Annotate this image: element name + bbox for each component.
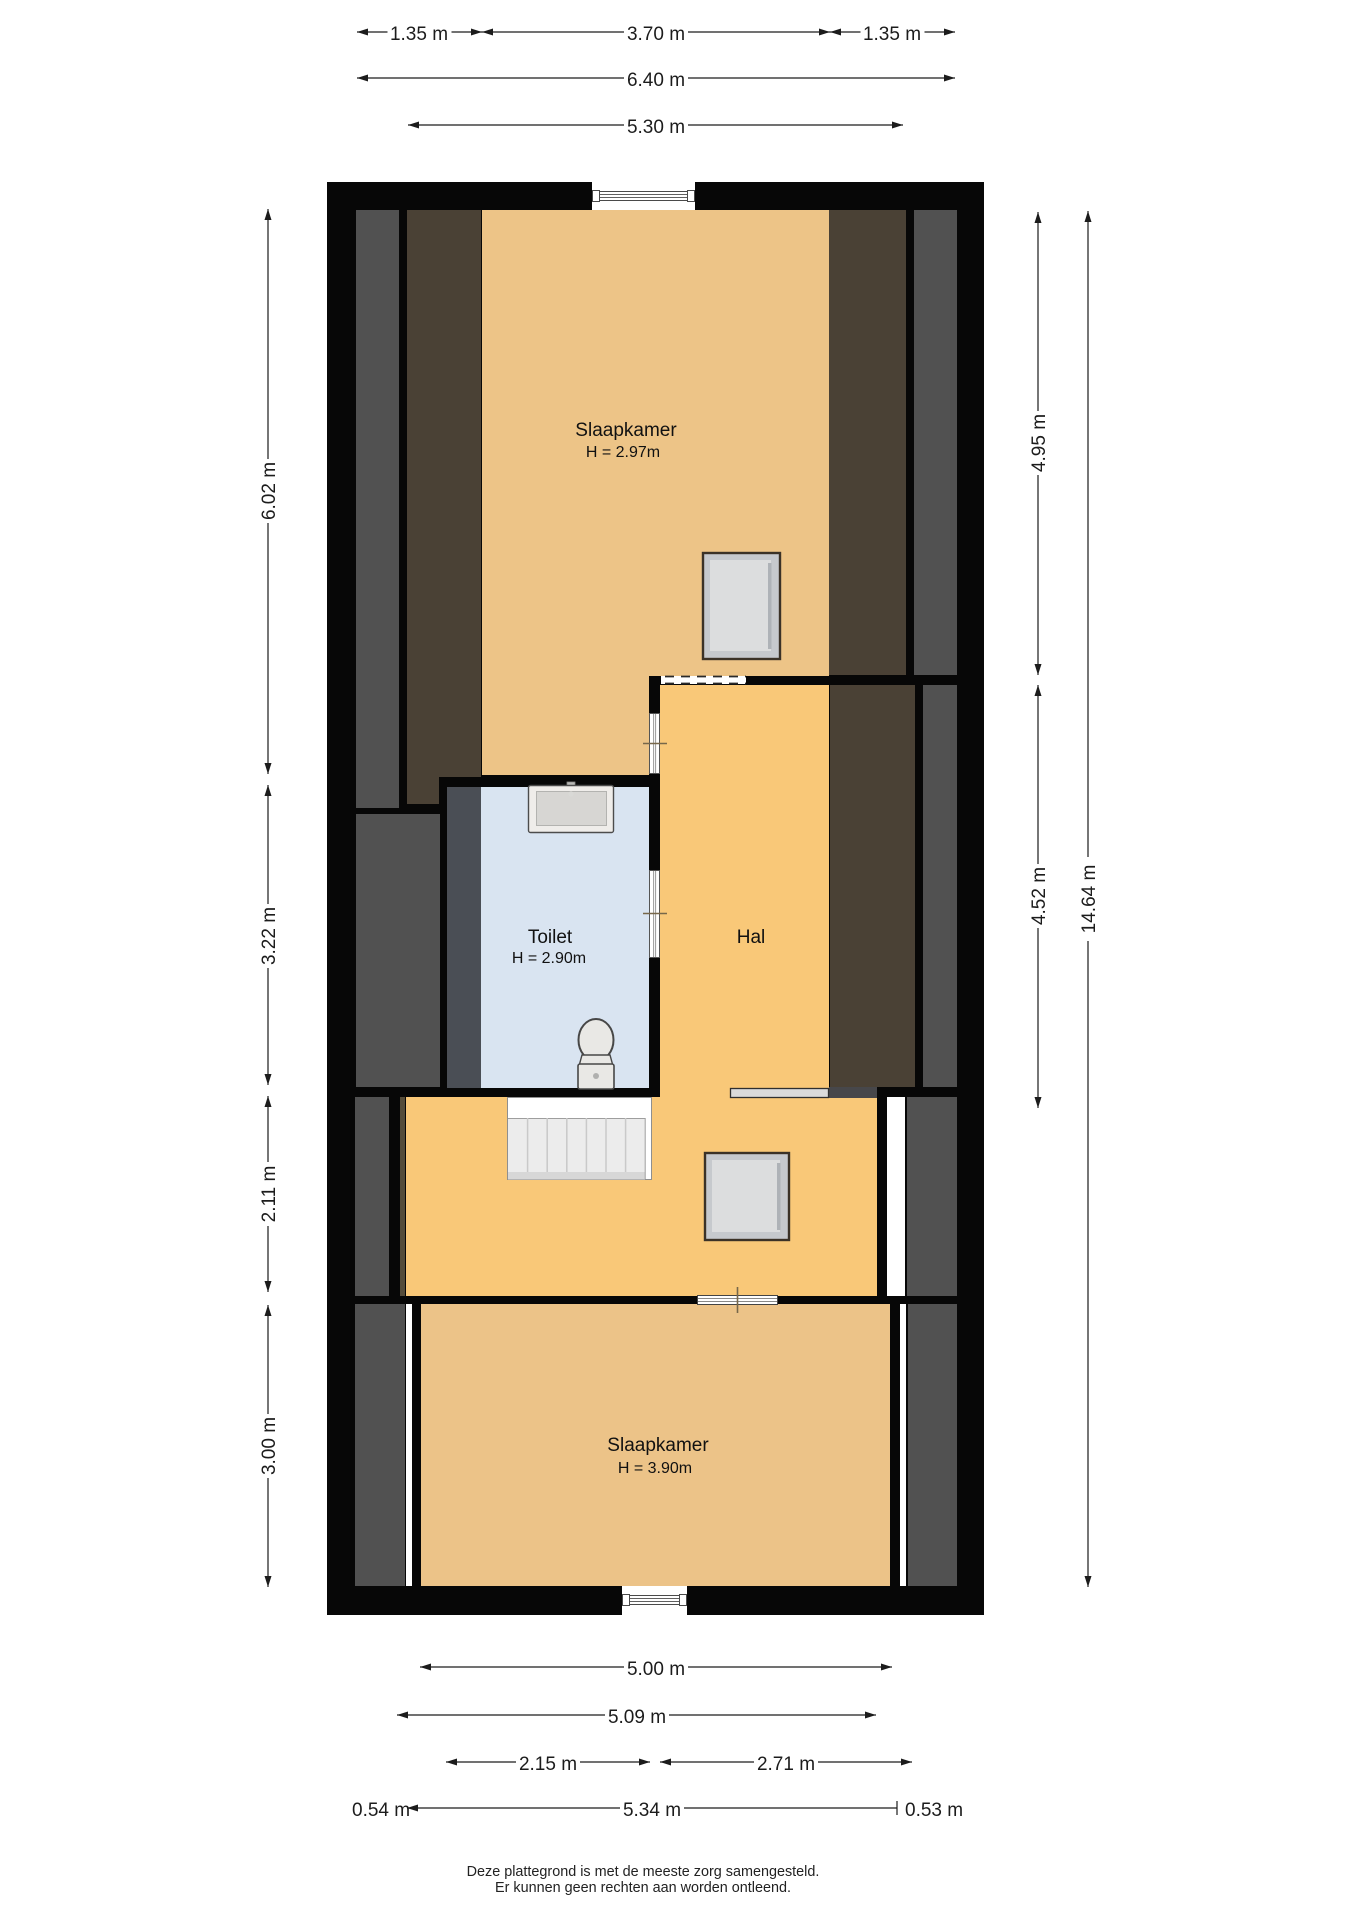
svg-text:3.22 m: 3.22 m <box>259 907 280 965</box>
svg-text:5.09 m: 5.09 m <box>608 1707 666 1728</box>
svg-text:3.00 m: 3.00 m <box>259 1417 280 1475</box>
svg-text:0.54 m: 0.54 m <box>352 1800 410 1821</box>
svg-text:3.70 m: 3.70 m <box>627 24 685 45</box>
svg-text:H = 3.90m: H = 3.90m <box>618 1460 692 1477</box>
svg-text:6.40 m: 6.40 m <box>627 70 685 91</box>
svg-text:2.11 m: 2.11 m <box>259 1166 280 1223</box>
svg-text:Hal: Hal <box>737 927 766 948</box>
svg-text:6.02 m: 6.02 m <box>259 462 280 520</box>
svg-text:1.35 m: 1.35 m <box>390 24 448 45</box>
svg-text:5.00 m: 5.00 m <box>627 1659 685 1680</box>
svg-text:H = 2.97m: H = 2.97m <box>586 444 660 461</box>
svg-text:14.64 m: 14.64 m <box>1079 865 1100 934</box>
svg-text:5.34 m: 5.34 m <box>623 1800 681 1821</box>
svg-text:Deze plattegrond is met de mee: Deze plattegrond is met de meeste zorg s… <box>467 1864 820 1880</box>
svg-text:1.35 m: 1.35 m <box>863 24 921 45</box>
svg-text:2.71 m: 2.71 m <box>757 1754 815 1775</box>
svg-text:5.30 m: 5.30 m <box>627 117 685 138</box>
svg-text:H = 2.90m: H = 2.90m <box>512 950 586 967</box>
svg-text:Slaapkamer: Slaapkamer <box>575 420 677 441</box>
svg-text:0.53 m: 0.53 m <box>905 1800 963 1821</box>
svg-text:Slaapkamer: Slaapkamer <box>607 1435 709 1456</box>
svg-text:Toilet: Toilet <box>528 927 573 948</box>
svg-text:2.15 m: 2.15 m <box>519 1754 577 1775</box>
svg-text:Er kunnen geen rechten aan wor: Er kunnen geen rechten aan worden ontlee… <box>495 1880 791 1896</box>
svg-text:4.95 m: 4.95 m <box>1029 414 1050 472</box>
svg-text:4.52 m: 4.52 m <box>1029 867 1050 925</box>
